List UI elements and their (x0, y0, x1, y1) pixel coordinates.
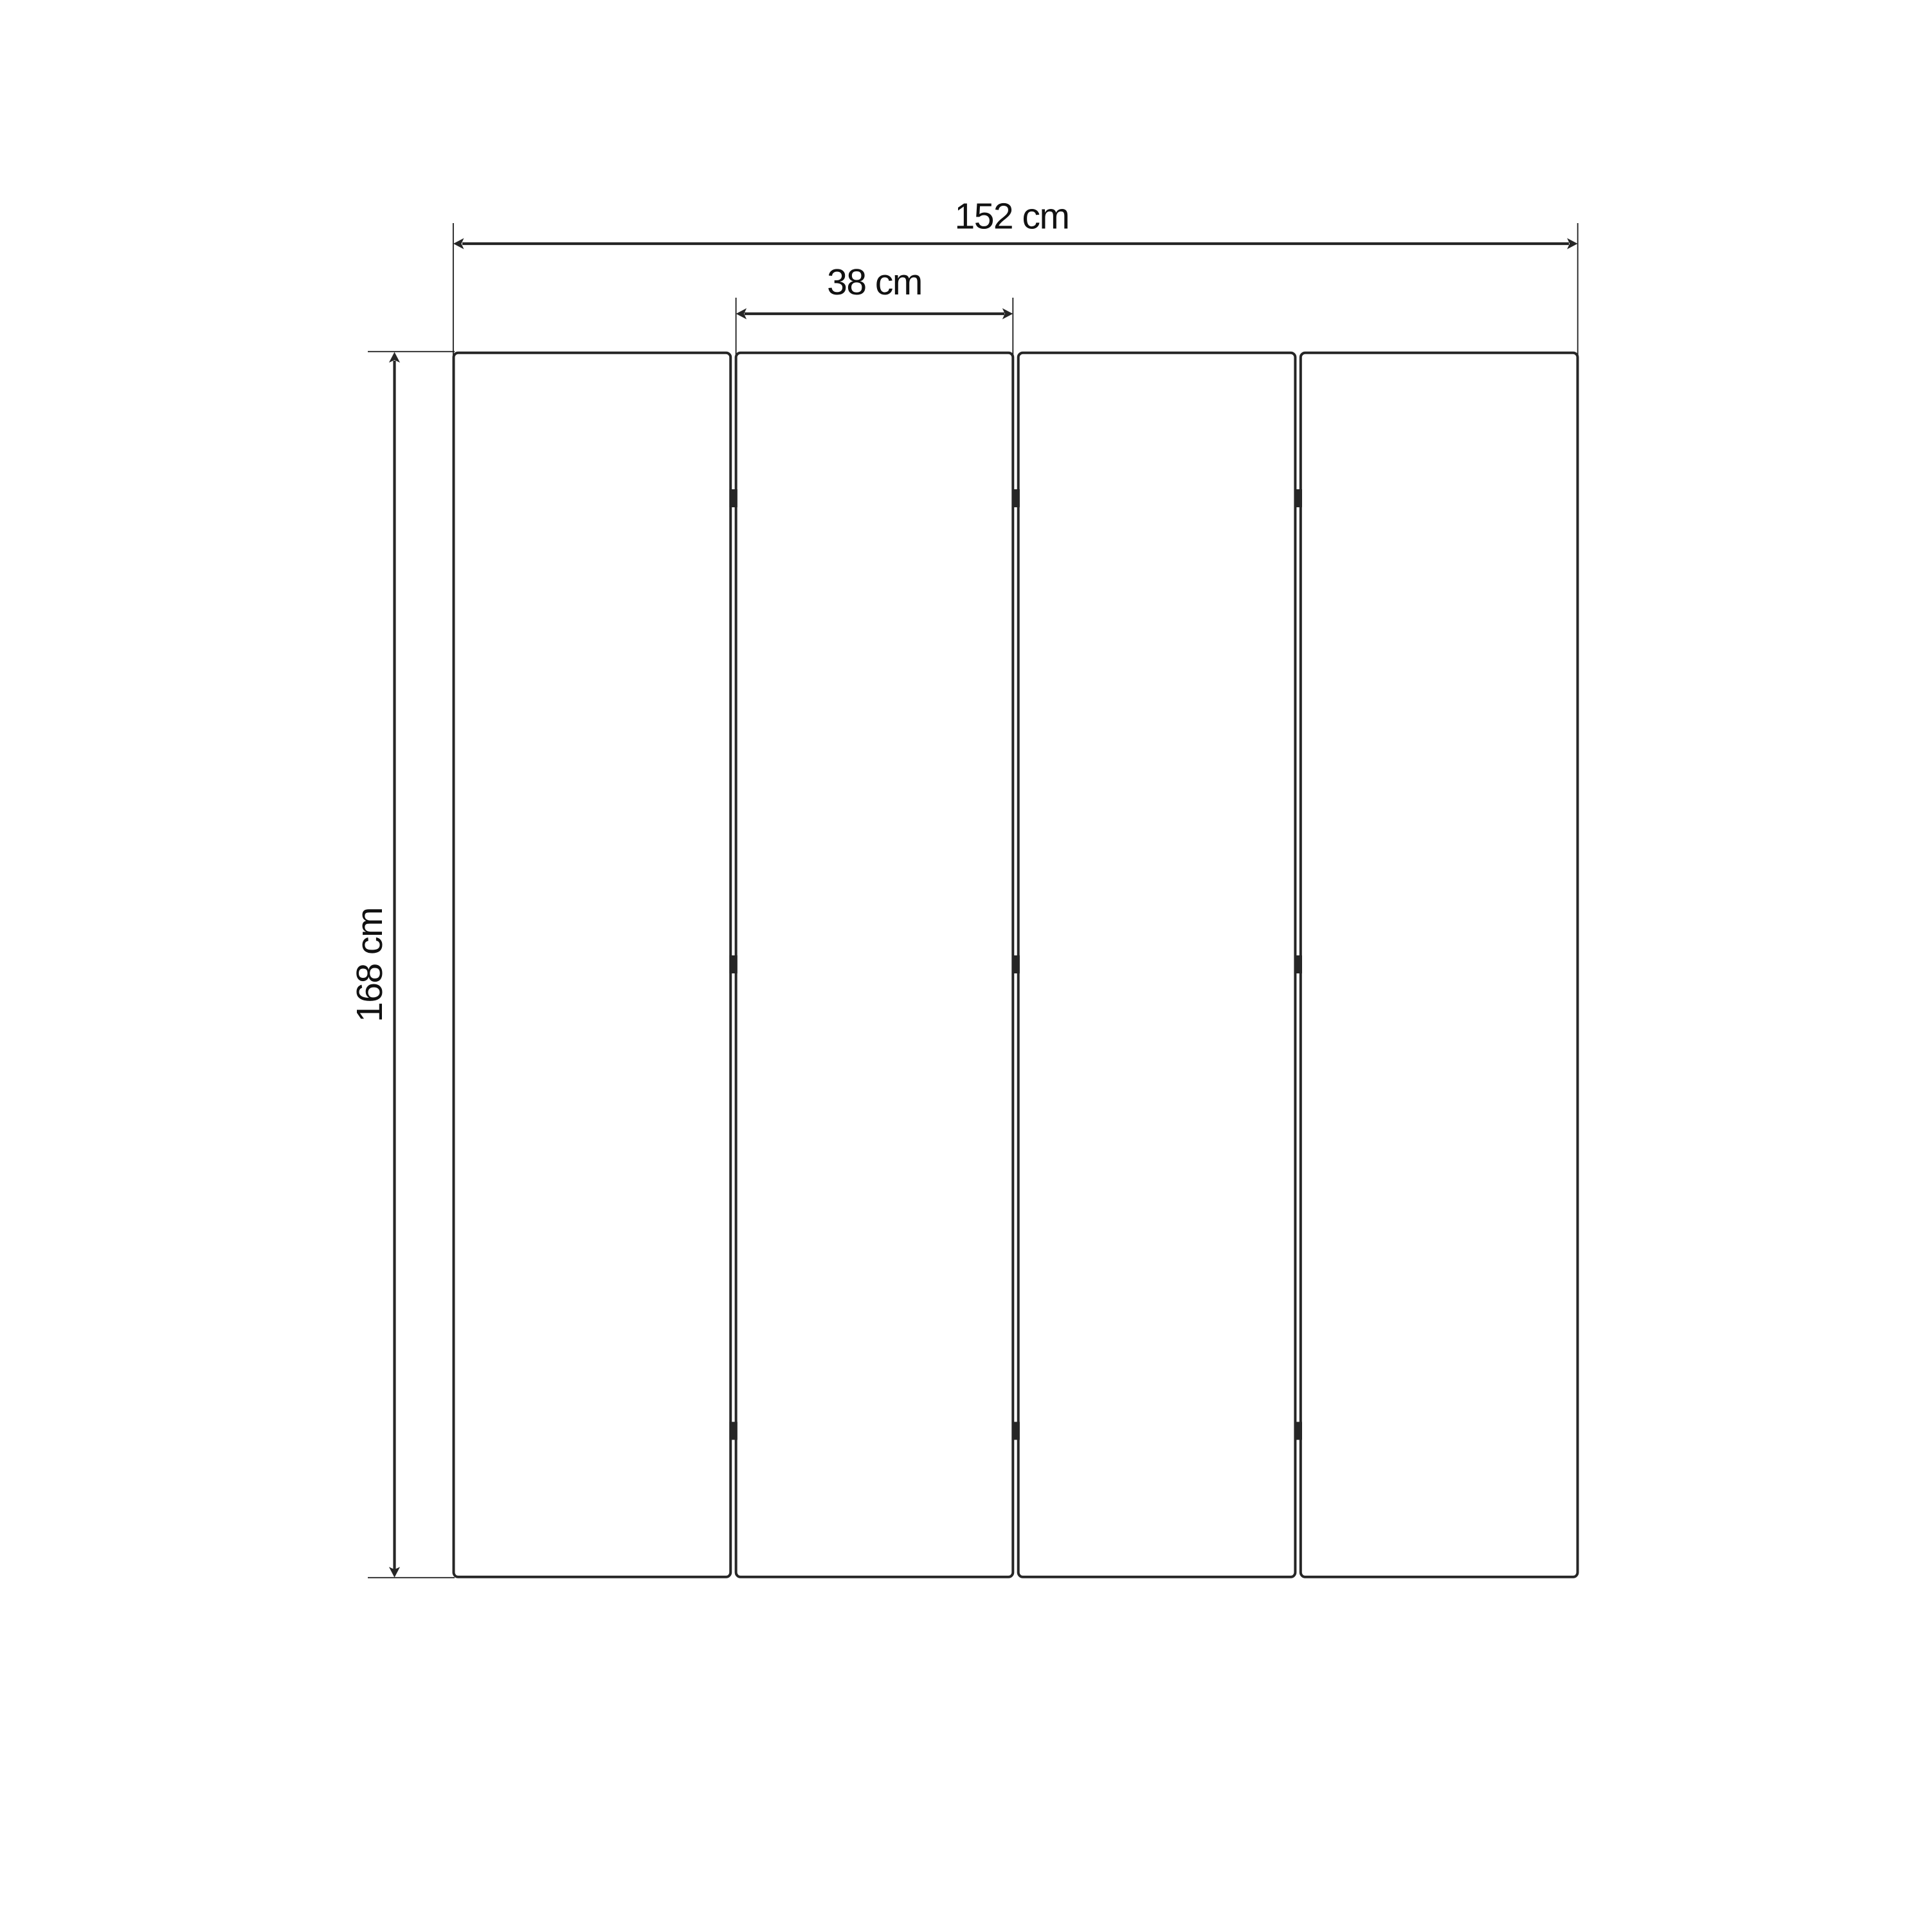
svg-text:38 cm: 38 cm (827, 262, 922, 303)
svg-text:152 cm: 152 cm (955, 196, 1069, 237)
svg-text:168 cm: 168 cm (349, 908, 390, 1022)
